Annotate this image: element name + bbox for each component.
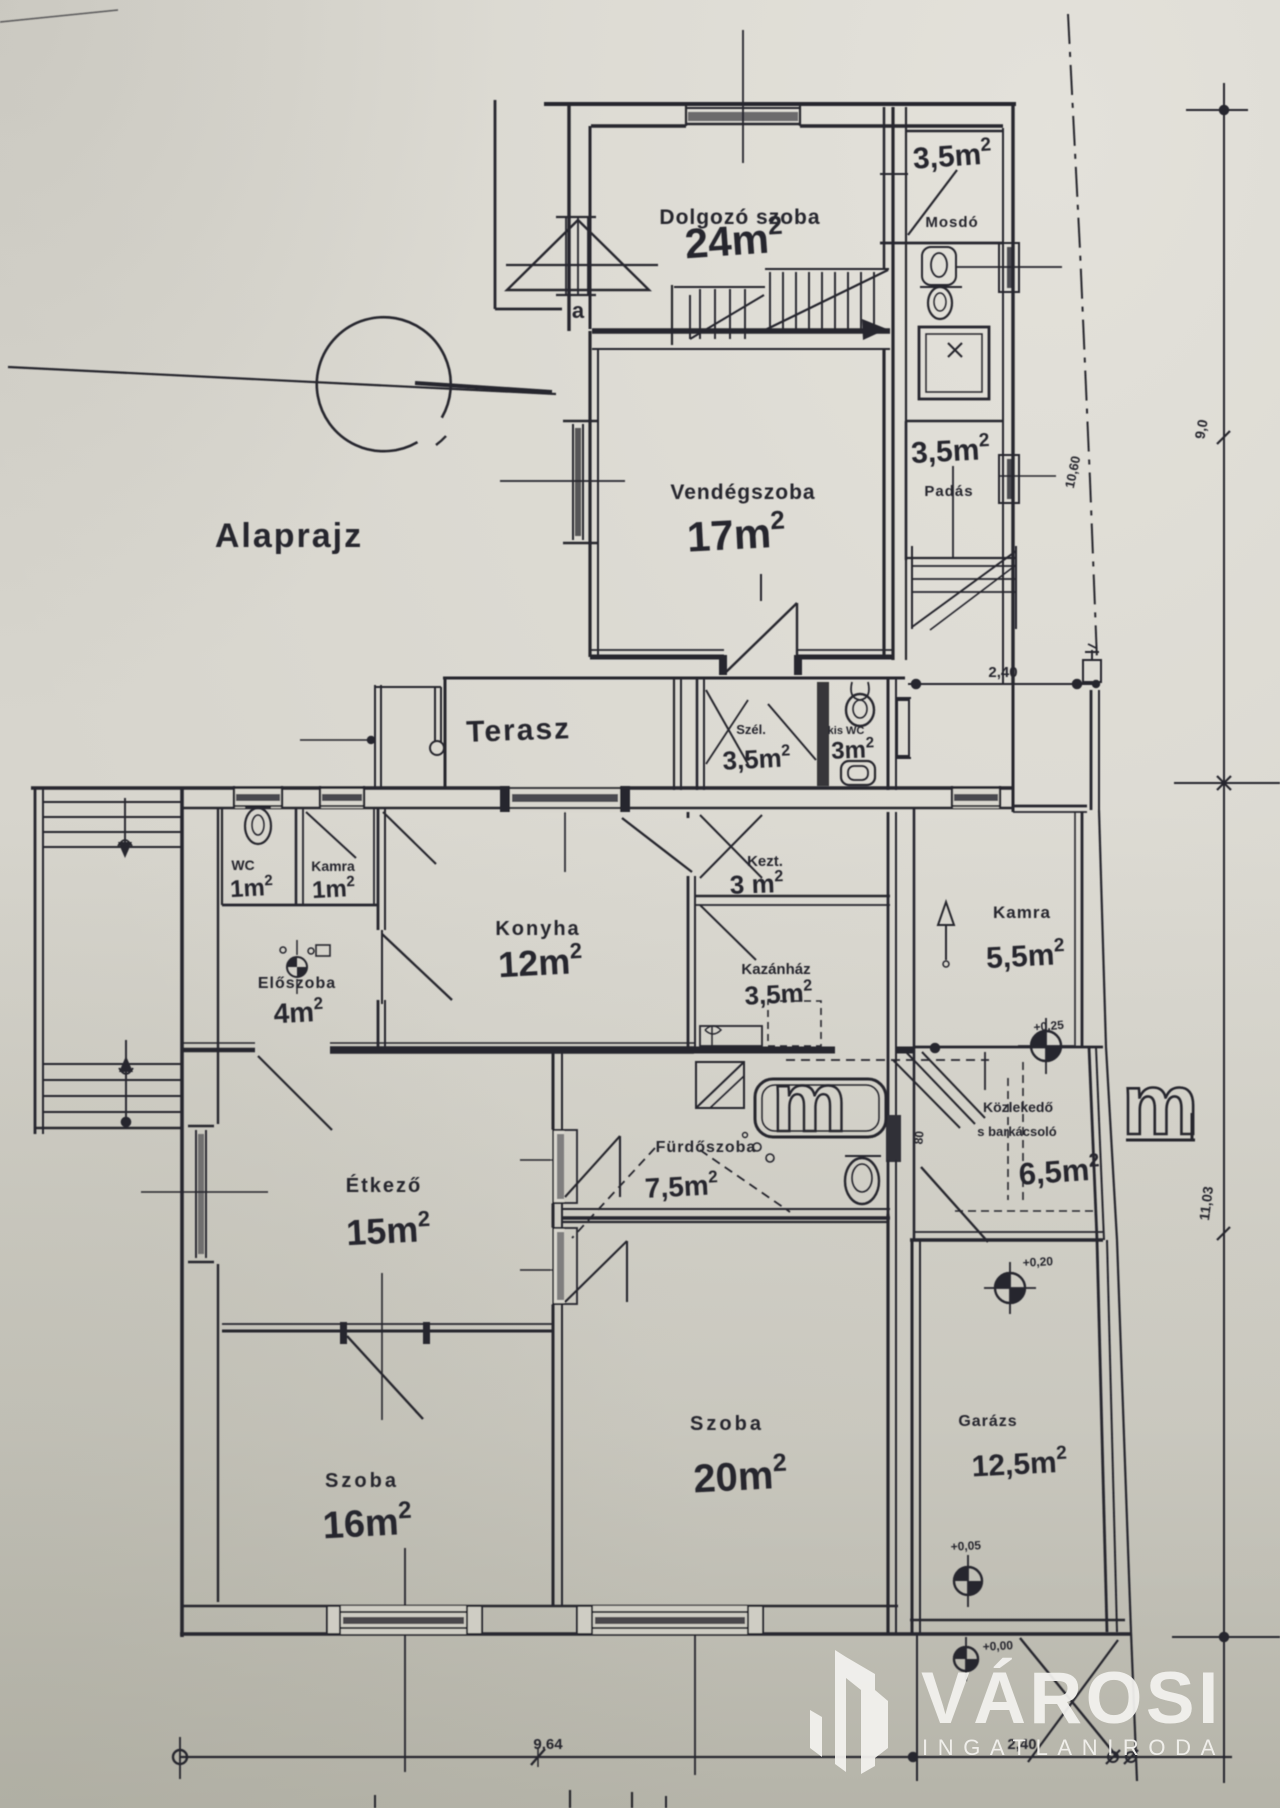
svg-text:7,5m2: 7,5m2 <box>644 1167 719 1204</box>
svg-text:+0,25: +0,25 <box>1033 1018 1065 1035</box>
svg-text:Mosdó: Mosdó <box>925 214 978 231</box>
svg-text:5,5m2: 5,5m2 <box>985 935 1066 975</box>
svg-text:Terasz: Terasz <box>466 712 572 749</box>
svg-text:9,64: 9,64 <box>533 1736 563 1753</box>
svg-text:Fürdőszoba: Fürdőszoba <box>656 1139 757 1156</box>
svg-text:9,0: 9,0 <box>1192 418 1211 440</box>
svg-text:Étkező: Étkező <box>346 1174 422 1197</box>
svg-text:Kazánház: Kazánház <box>741 961 810 978</box>
svg-text:WC: WC <box>231 857 254 873</box>
svg-text:Szoba: Szoba <box>325 1470 399 1492</box>
svg-text:Vendégszoba: Vendégszoba <box>670 481 815 504</box>
svg-text:15m2: 15m2 <box>345 1206 431 1253</box>
svg-text:16m2: 16m2 <box>321 1497 413 1548</box>
svg-text:12m2: 12m2 <box>497 938 583 985</box>
svg-text:2,40: 2,40 <box>988 664 1017 681</box>
svg-text:a: a <box>572 298 585 323</box>
svg-text:INGATLANIRODA: INGATLANIRODA <box>922 1735 1225 1760</box>
svg-text:Szoba: Szoba <box>690 1413 764 1435</box>
svg-text:Konyha: Konyha <box>495 918 580 940</box>
svg-text:20m2: 20m2 <box>692 1449 788 1502</box>
svg-text:Előszoba: Előszoba <box>258 975 336 992</box>
svg-text:17m2: 17m2 <box>686 504 787 560</box>
svg-text:VÁROSI: VÁROSI <box>921 1658 1222 1739</box>
svg-text:3,5m2: 3,5m2 <box>910 430 991 470</box>
svg-text:3,5m2: 3,5m2 <box>744 977 814 1011</box>
svg-text:m: m <box>772 1055 847 1149</box>
svg-text:Kamra: Kamra <box>993 903 1051 922</box>
svg-text:+0,00: +0,00 <box>982 1638 1013 1654</box>
svg-text:kis WC: kis WC <box>828 725 865 737</box>
svg-text:6,5m2: 6,5m2 <box>1017 1150 1101 1192</box>
svg-text:80: 80 <box>911 1130 926 1145</box>
svg-text:3,5m2: 3,5m2 <box>722 742 792 776</box>
svg-text:Alaprajz: Alaprajz <box>215 517 363 555</box>
svg-text:Kamra: Kamra <box>311 858 355 874</box>
svg-text:s barkácsoló: s barkácsoló <box>977 1124 1057 1139</box>
svg-text:+0,05: +0,05 <box>950 1538 981 1554</box>
svg-text:Padás: Padás <box>924 483 973 500</box>
svg-text:Garázs: Garázs <box>958 1413 1017 1430</box>
svg-text:Szél.: Szél. <box>736 722 766 737</box>
svg-text:Közlekedő: Közlekedő <box>983 1099 1053 1115</box>
svg-text:+0,20: +0,20 <box>1022 1254 1053 1270</box>
